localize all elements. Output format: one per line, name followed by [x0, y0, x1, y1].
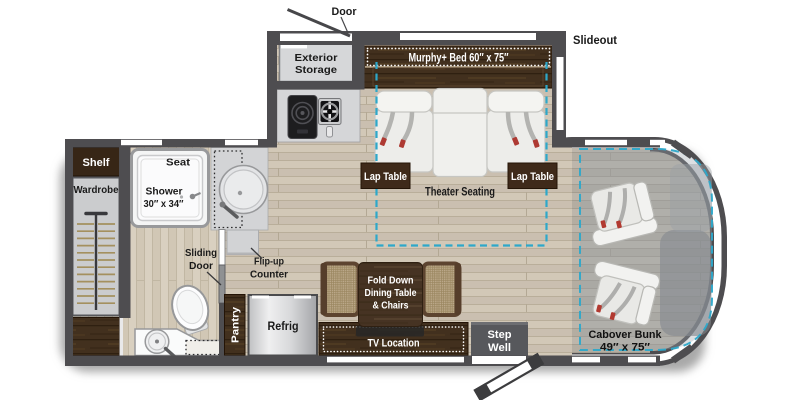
svg-text:& Chairs: & Chairs	[373, 300, 409, 312]
svg-text:Well: Well	[488, 342, 511, 354]
svg-text:Pantry: Pantry	[231, 306, 242, 343]
svg-text:Shelf: Shelf	[83, 157, 110, 169]
svg-text:Fold Down: Fold Down	[368, 275, 414, 287]
svg-text:Sliding: Sliding	[185, 247, 217, 259]
svg-text:49″ x 75″: 49″ x 75″	[600, 342, 651, 354]
svg-text:Flip-up: Flip-up	[254, 256, 284, 268]
svg-text:Shower: Shower	[146, 186, 183, 198]
svg-text:Theater Seating: Theater Seating	[425, 185, 495, 199]
svg-text:Murphy+ Bed 60″ x 75″: Murphy+ Bed 60″ x 75″	[409, 51, 509, 65]
svg-text:Dining Table: Dining Table	[365, 287, 417, 299]
svg-text:Wardrobe: Wardrobe	[74, 184, 119, 196]
svg-text:Step: Step	[488, 329, 512, 341]
svg-text:Storage: Storage	[295, 64, 337, 76]
svg-text:Seat: Seat	[166, 157, 191, 169]
svg-text:Counter: Counter	[250, 269, 288, 281]
svg-text:Refrig: Refrig	[268, 321, 299, 333]
svg-text:30″ x 34″: 30″ x 34″	[144, 198, 184, 210]
svg-text:Exterior: Exterior	[295, 52, 338, 64]
svg-text:Cabover Bunk: Cabover Bunk	[589, 329, 663, 341]
svg-text:Slideout: Slideout	[573, 35, 617, 47]
svg-text:Lap Table: Lap Table	[364, 171, 407, 183]
svg-text:Door: Door	[332, 6, 358, 18]
svg-text:TV Location: TV Location	[368, 338, 420, 350]
svg-text:Door: Door	[189, 260, 213, 272]
svg-text:Lap Table: Lap Table	[511, 171, 554, 183]
